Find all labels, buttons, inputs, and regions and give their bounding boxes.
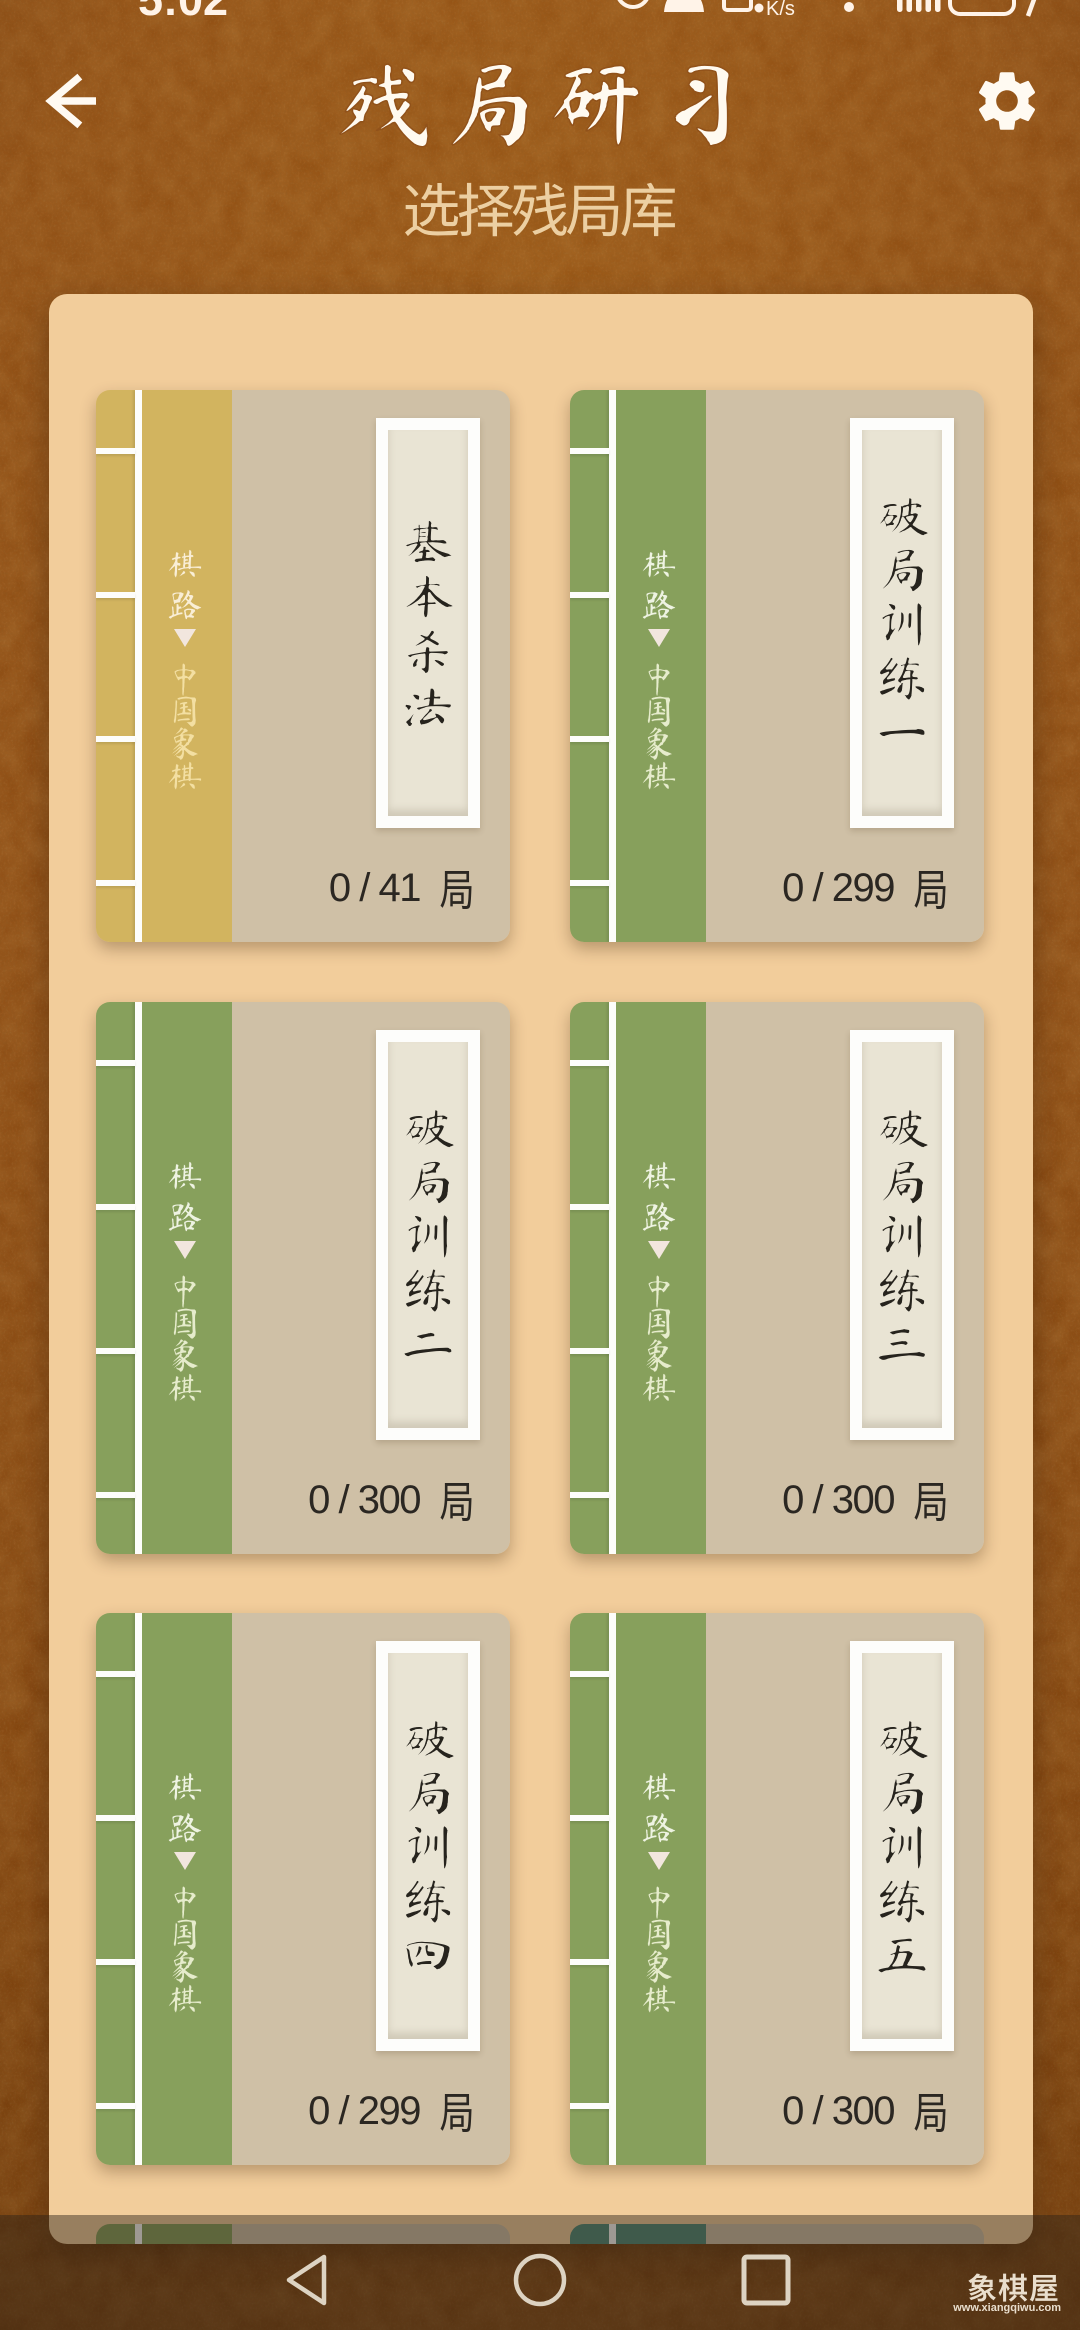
- svg-text:5:02: 5:02: [138, 0, 228, 25]
- svg-text:www.xiangqiwu.com: www.xiangqiwu.com: [952, 2302, 1061, 2314]
- svg-text:0 / 299: 0 / 299: [308, 2089, 420, 2133]
- svg-text:0 / 300: 0 / 300: [782, 1478, 894, 1522]
- svg-text:0 / 300: 0 / 300: [308, 1478, 420, 1522]
- svg-text:0 / 300: 0 / 300: [782, 2089, 894, 2133]
- svg-text:0 / 299: 0 / 299: [782, 866, 894, 910]
- svg-text:K/s: K/s: [766, 0, 795, 20]
- svg-text:0 / 41: 0 / 41: [329, 866, 420, 910]
